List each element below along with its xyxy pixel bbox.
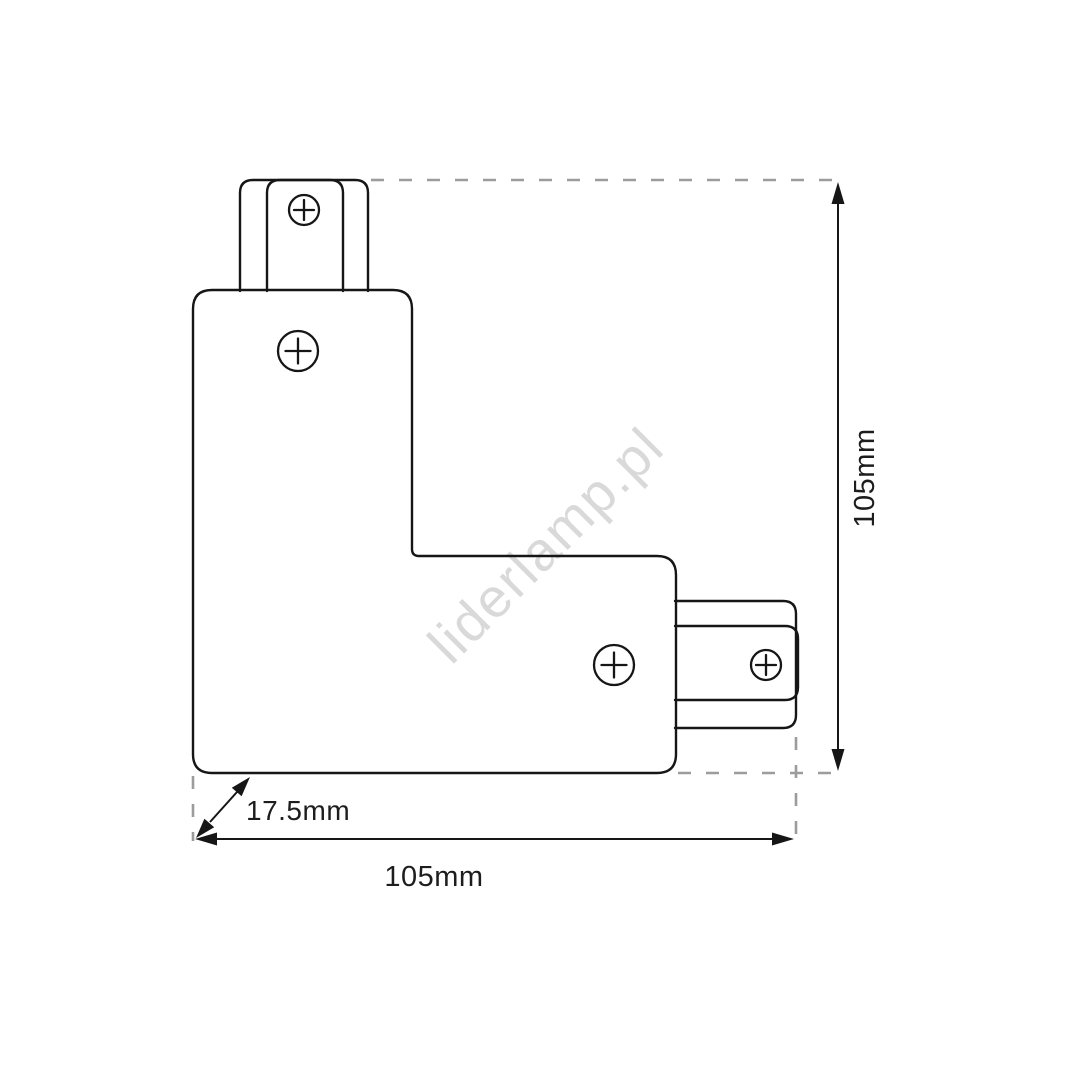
- right-connector-outer: [675, 601, 796, 728]
- height-dimension: [832, 182, 845, 771]
- extension-lines: [193, 180, 846, 841]
- top-connector-outer: [240, 180, 368, 291]
- technical-drawing-page: liderlamp.pl: [0, 0, 1080, 1080]
- screw-icon-right-connector: [751, 650, 781, 680]
- depth-dimension-label: 17.5mm: [246, 795, 350, 826]
- screw-icon-body-lower: [594, 645, 634, 685]
- body-outline: [193, 290, 676, 773]
- screw-icon-body-upper: [278, 331, 318, 371]
- arrowhead-down-icon: [832, 749, 845, 771]
- width-dimension: [195, 833, 794, 846]
- arrowhead-right-icon: [772, 833, 794, 846]
- right-connector-inner: [675, 626, 798, 700]
- height-dimension-label: 105mm: [849, 428, 881, 527]
- depth-dimension: [196, 777, 250, 838]
- width-dimension-label: 105mm: [384, 861, 483, 893]
- diagram-canvas: liderlamp.pl: [0, 0, 1080, 1080]
- watermark-text: liderlamp.pl: [416, 415, 676, 675]
- screws: [278, 195, 781, 685]
- screw-icon-top-connector: [289, 195, 319, 225]
- top-connector-inner: [267, 180, 343, 291]
- arrowhead-up-icon: [832, 182, 845, 204]
- part-outline: [193, 180, 798, 773]
